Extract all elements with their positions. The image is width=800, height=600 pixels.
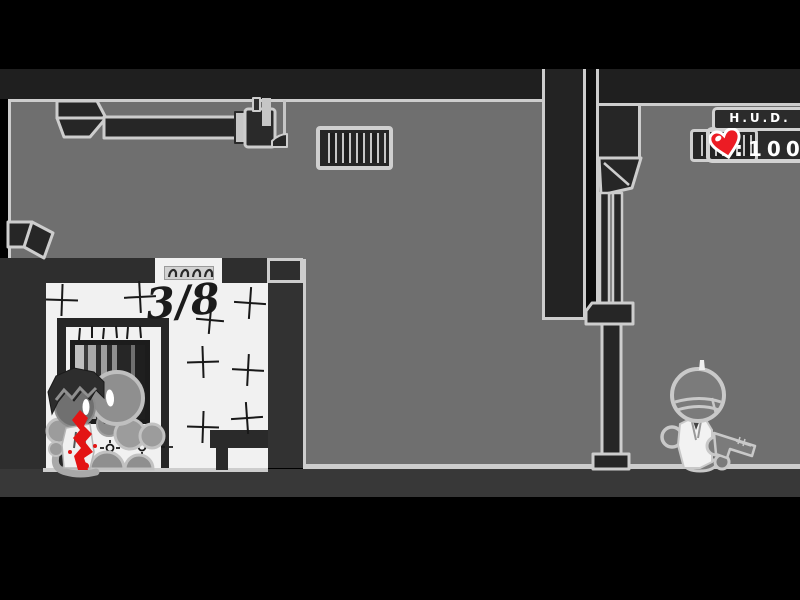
air-vent-grill <box>316 126 393 170</box>
sub-floor-band <box>0 469 800 497</box>
vent-slats <box>323 133 386 163</box>
duct-shaft <box>599 106 641 160</box>
duct-shaft-outline <box>638 106 641 160</box>
left-wall-outline <box>8 99 11 258</box>
pillar-gap-outline <box>596 69 599 323</box>
ledge-post <box>216 448 228 470</box>
room-floor-outline <box>43 468 268 472</box>
lintel-block <box>267 258 303 283</box>
kill-counter: 3/8 <box>144 272 238 329</box>
ceiling-band-right <box>586 69 800 106</box>
dark-pillar <box>542 69 586 320</box>
room-right-wall-outline <box>303 259 306 468</box>
helmet-spike <box>699 360 705 370</box>
room-right-wall <box>268 283 303 468</box>
health-value: :100 <box>735 137 800 161</box>
ceiling-outline-left <box>8 99 543 102</box>
game-screen[interactable]: 3/8 <box>0 0 800 600</box>
pillar-gap <box>586 69 596 320</box>
barred-window <box>70 340 150 424</box>
room-left-wall <box>0 258 46 470</box>
wall-ledge <box>210 430 268 448</box>
